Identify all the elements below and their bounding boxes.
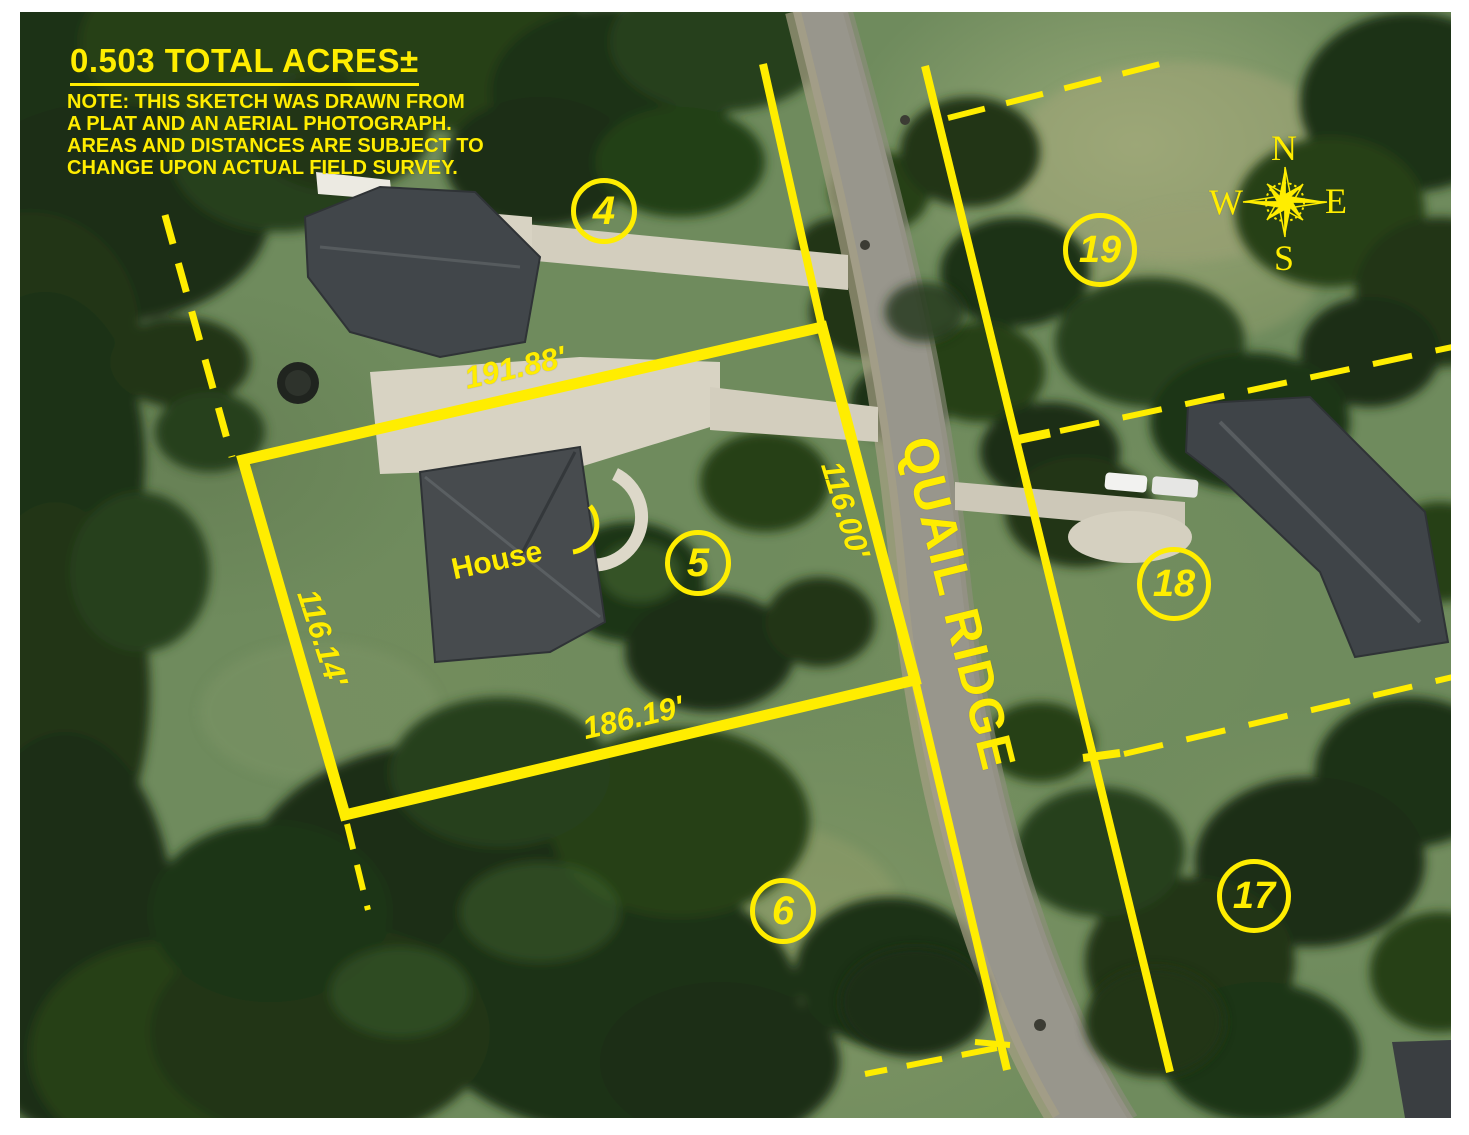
parked-car — [1151, 476, 1198, 498]
survey-note: NOTE: THIS SKETCH WAS DRAWN FROM A PLAT … — [67, 91, 484, 179]
survey-note-line-3: AREAS AND DISTANCES ARE SUBJECT TO — [67, 135, 484, 157]
lot-marker-6: 6 — [750, 878, 816, 944]
row-end-tick — [975, 1042, 1010, 1045]
lot-number-5: 5 — [687, 541, 709, 586]
lot18-house-roof — [1186, 397, 1448, 657]
lot-marker-17: 17 — [1217, 859, 1291, 933]
lot18-17-tick — [1083, 753, 1120, 758]
lot-number-19: 19 — [1079, 229, 1121, 272]
lot-marker-19: 19 — [1063, 213, 1137, 287]
lot-marker-5: 5 — [665, 530, 731, 596]
survey-note-line-4: CHANGE UPON ACTUAL FIELD SURVEY. — [67, 157, 484, 179]
aerial-photo: 0.503 TOTAL ACRES± NOTE: THIS SKETCH WAS… — [20, 12, 1451, 1118]
compass-west-label: W — [1209, 181, 1243, 223]
lot-number-6: 6 — [772, 889, 794, 934]
compass-north-label: N — [1271, 127, 1297, 169]
survey-note-line-2: A PLAT AND AN AERIAL PHOTOGRAPH. — [67, 113, 484, 135]
total-acres-title: 0.503 TOTAL ACRES± — [70, 42, 419, 86]
lot-number-17: 17 — [1233, 875, 1275, 918]
lot-marker-18: 18 — [1137, 547, 1211, 621]
corner-house-roof — [1392, 1040, 1451, 1118]
lot-number-4: 4 — [593, 189, 615, 234]
lot-marker-4: 4 — [571, 178, 637, 244]
compass-south-label: S — [1274, 237, 1294, 279]
compass-east-label: E — [1325, 180, 1347, 222]
lot-number-18: 18 — [1153, 563, 1195, 606]
plat-sketch-canvas: 0.503 TOTAL ACRES± NOTE: THIS SKETCH WAS… — [0, 0, 1469, 1135]
survey-note-line-1: NOTE: THIS SKETCH WAS DRAWN FROM — [67, 91, 484, 113]
